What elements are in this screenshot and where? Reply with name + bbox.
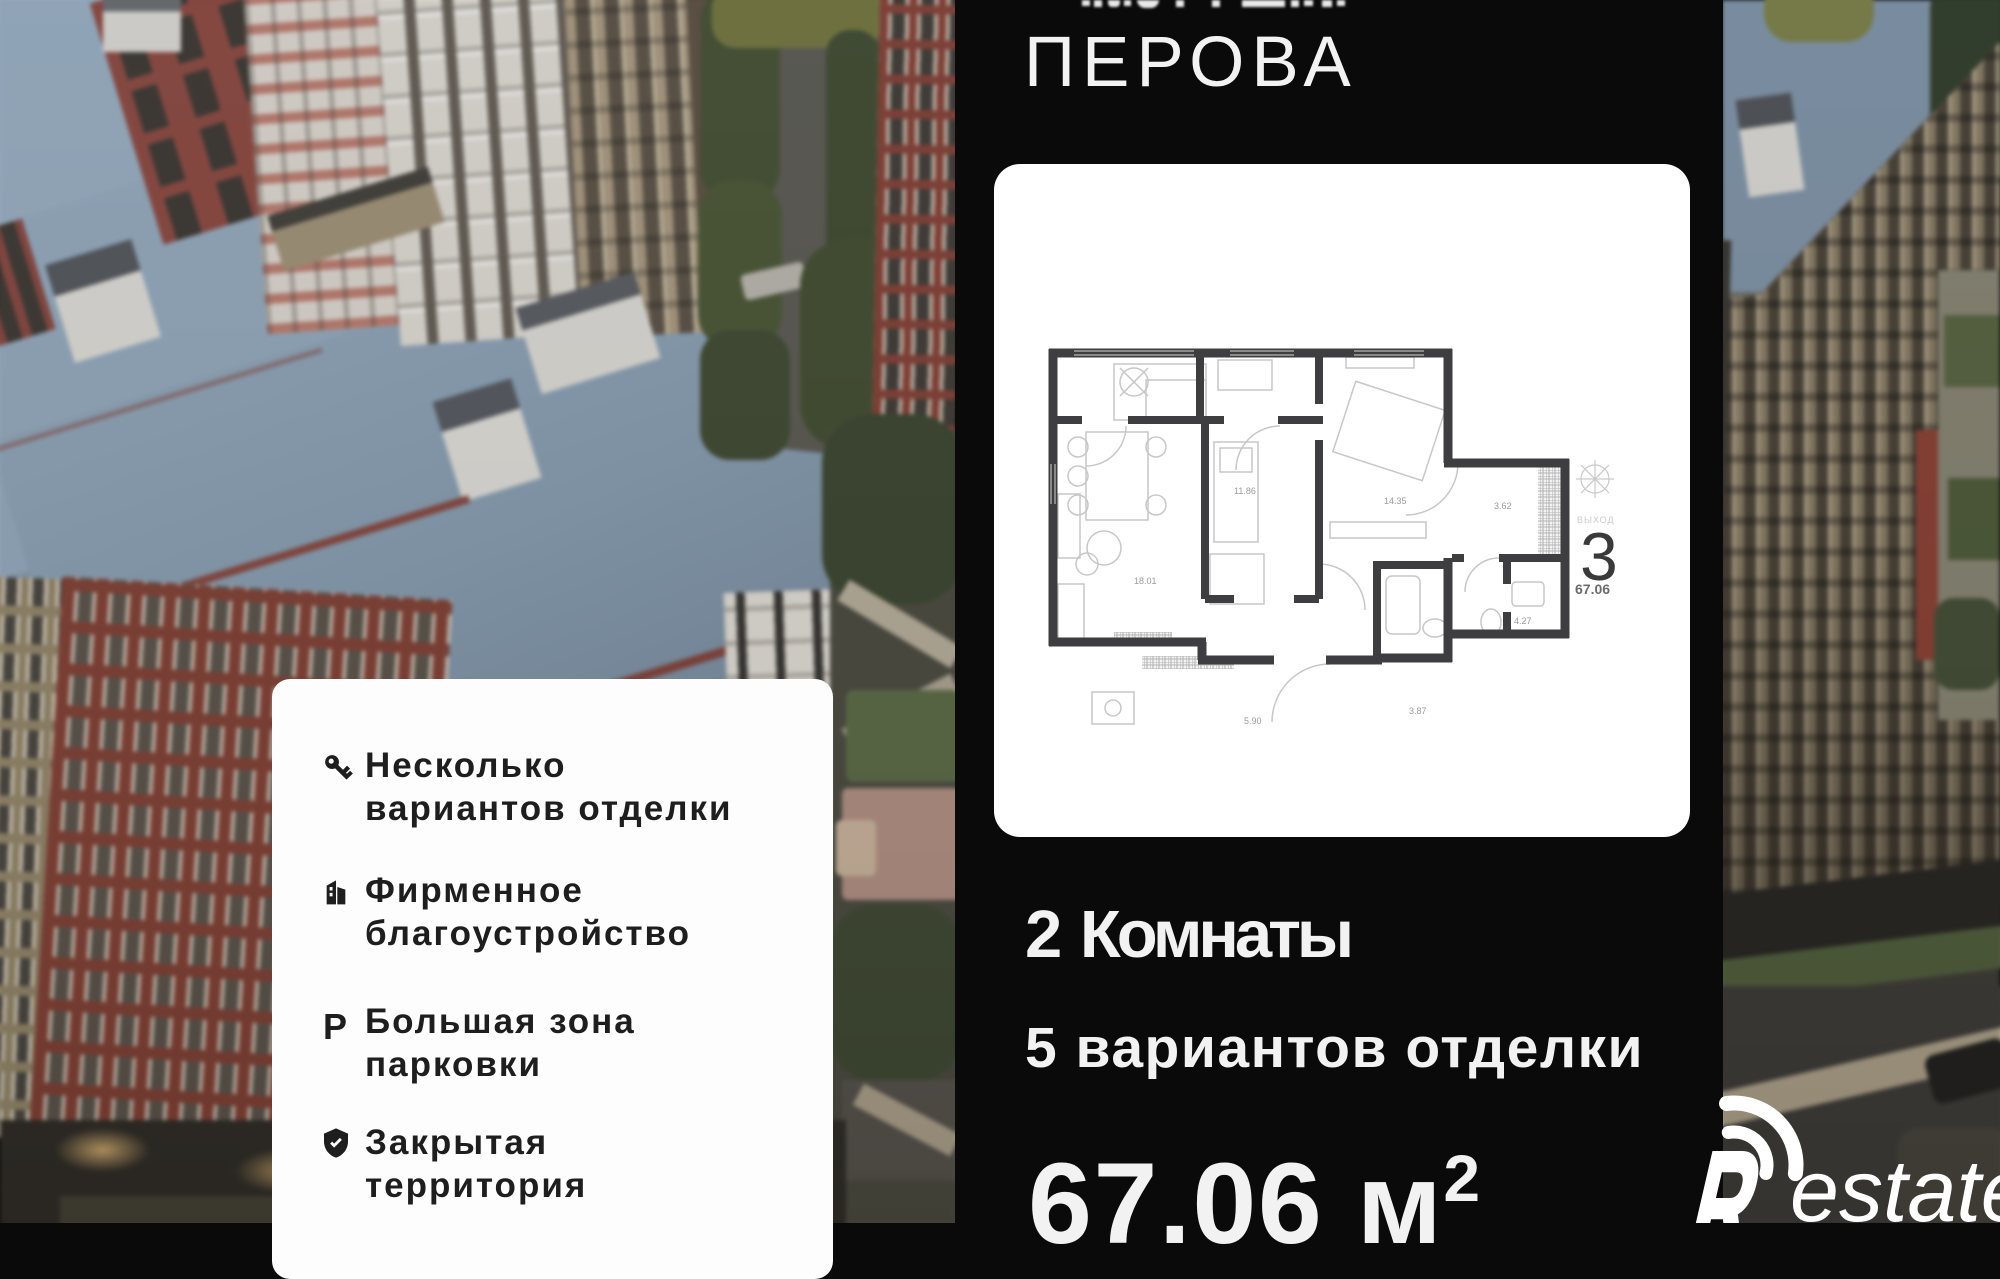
svg-text:14.35: 14.35 bbox=[1384, 496, 1407, 506]
svg-text:ВЫХОД: ВЫХОД bbox=[1577, 515, 1615, 525]
svg-text:18.01: 18.01 bbox=[1134, 576, 1157, 586]
svg-text:5.90: 5.90 bbox=[1244, 716, 1262, 726]
svg-text:67.06: 67.06 bbox=[1575, 581, 1610, 597]
svg-text:3.62: 3.62 bbox=[1494, 501, 1512, 511]
svg-text:estate: estate bbox=[1790, 1141, 2000, 1223]
svg-text:R: R bbox=[1676, 1122, 1774, 1223]
svg-text:11.86: 11.86 bbox=[1234, 486, 1256, 496]
svg-text:4.27: 4.27 bbox=[1514, 616, 1532, 626]
svg-text:3.87: 3.87 bbox=[1409, 706, 1427, 716]
